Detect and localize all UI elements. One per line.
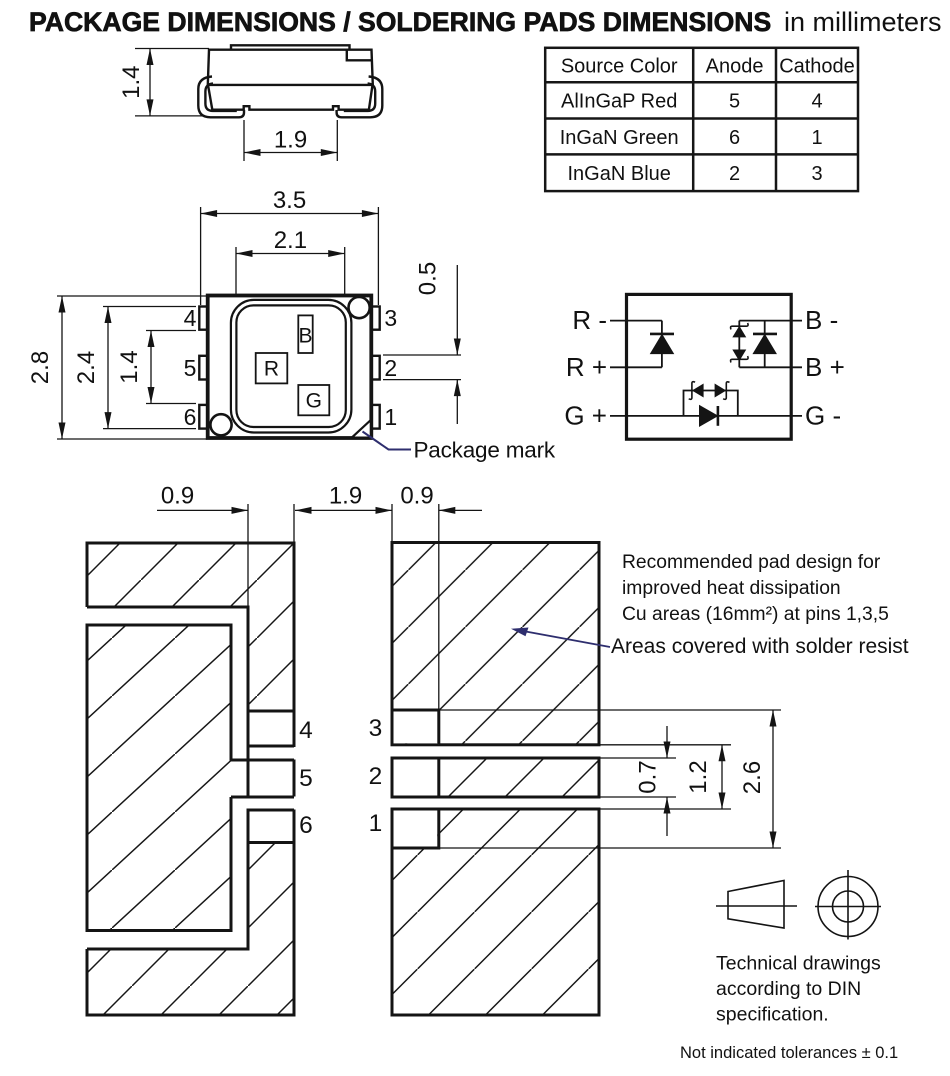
svg-text:Cu areas (16mm²) at pins 1,3,5: Cu areas (16mm²) at pins 1,3,5	[622, 604, 889, 625]
svg-text:1.2: 1.2	[685, 760, 712, 793]
svg-text:5: 5	[184, 355, 197, 381]
svg-text:Cathode: Cathode	[779, 55, 855, 77]
svg-text:0.7: 0.7	[635, 760, 662, 793]
svg-text:B: B	[298, 324, 312, 347]
svg-text:3: 3	[811, 163, 822, 185]
svg-text:2: 2	[369, 763, 383, 790]
svg-text:Anode: Anode	[706, 55, 764, 77]
svg-text:0.9: 0.9	[161, 483, 194, 510]
svg-text:0.9: 0.9	[400, 483, 433, 510]
svg-text:6: 6	[299, 812, 313, 839]
svg-text:B +: B +	[805, 352, 845, 382]
svg-text:in millimeters: in millimeters	[784, 7, 942, 37]
svg-text:4: 4	[811, 91, 822, 113]
svg-text:1.4: 1.4	[116, 350, 143, 383]
svg-text:2.8: 2.8	[27, 351, 54, 384]
svg-text:1.9: 1.9	[329, 483, 362, 510]
svg-text:Areas covered with solder resi: Areas covered with solder resist	[611, 635, 909, 658]
svg-text:R +: R +	[566, 352, 607, 382]
svg-text:3: 3	[384, 305, 397, 331]
svg-text:2.1: 2.1	[274, 227, 307, 254]
svg-text:1.9: 1.9	[274, 127, 307, 154]
svg-text:4: 4	[184, 305, 197, 331]
svg-text:R: R	[264, 358, 279, 381]
svg-text:B -: B -	[805, 305, 838, 335]
svg-text:PACKAGE DIMENSIONS / SOLDERING: PACKAGE DIMENSIONS / SOLDERING PADS DIME…	[29, 7, 771, 37]
svg-text:R -: R -	[572, 305, 607, 335]
svg-text:0.5: 0.5	[415, 262, 442, 295]
svg-text:according to DIN: according to DIN	[716, 978, 861, 1000]
svg-text:AlInGaP Red: AlInGaP Red	[561, 91, 677, 113]
svg-text:Not indicated tolerances ± 0.1: Not indicated tolerances ± 0.1	[680, 1044, 898, 1062]
svg-text:2: 2	[729, 163, 740, 185]
svg-text:Source Color: Source Color	[561, 55, 678, 77]
svg-text:1: 1	[369, 810, 383, 837]
svg-text:1: 1	[811, 127, 822, 149]
svg-text:InGaN Green: InGaN Green	[560, 127, 679, 149]
svg-text:5: 5	[299, 765, 313, 792]
svg-text:Recommended pad design for: Recommended pad design for	[622, 552, 881, 573]
svg-text:6: 6	[184, 404, 197, 430]
svg-text:1.4: 1.4	[118, 66, 145, 99]
svg-text:G -: G -	[805, 400, 841, 430]
svg-text:3.5: 3.5	[273, 187, 306, 214]
svg-text:Technical drawings: Technical drawings	[716, 953, 881, 975]
svg-text:specification.: specification.	[716, 1004, 829, 1026]
svg-text:G: G	[306, 390, 322, 413]
svg-text:6: 6	[729, 127, 740, 149]
svg-text:2: 2	[384, 355, 397, 381]
svg-text:InGaN Blue: InGaN Blue	[568, 163, 671, 185]
svg-text:3: 3	[369, 715, 383, 742]
svg-text:Package mark: Package mark	[414, 438, 556, 463]
svg-text:improved heat dissipation: improved heat dissipation	[622, 578, 841, 599]
svg-text:4: 4	[299, 717, 313, 744]
svg-text:1: 1	[384, 404, 397, 430]
svg-text:2.4: 2.4	[73, 351, 100, 384]
svg-text:2.6: 2.6	[739, 761, 766, 794]
svg-text:5: 5	[729, 91, 740, 113]
svg-text:G +: G +	[564, 400, 607, 430]
